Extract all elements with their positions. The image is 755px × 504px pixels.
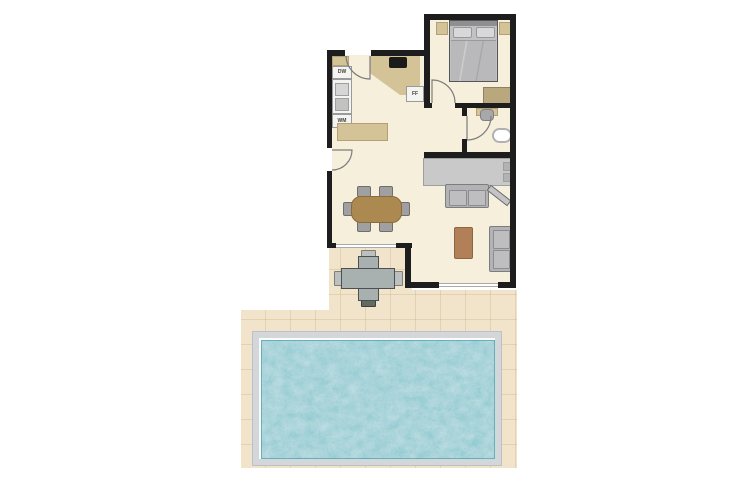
wall bbox=[510, 14, 516, 288]
bedroom-door bbox=[432, 80, 455, 103]
wall bbox=[424, 14, 516, 20]
floor-plan: DW WM FF bbox=[0, 0, 755, 504]
living-slider-door bbox=[439, 283, 498, 287]
wall bbox=[327, 243, 336, 248]
wall bbox=[327, 50, 332, 148]
wall bbox=[405, 282, 439, 288]
wall bbox=[424, 14, 430, 108]
door-arcs bbox=[0, 0, 755, 504]
wall bbox=[462, 108, 467, 116]
patio-slider-door bbox=[336, 244, 396, 248]
wall bbox=[462, 139, 467, 153]
wall bbox=[424, 103, 432, 108]
wall bbox=[327, 171, 332, 248]
entry-door bbox=[346, 56, 370, 79]
bathroom-door bbox=[467, 116, 491, 140]
wall bbox=[498, 282, 516, 288]
wall bbox=[371, 50, 430, 56]
balcony-door bbox=[332, 150, 352, 170]
wall bbox=[424, 152, 516, 158]
